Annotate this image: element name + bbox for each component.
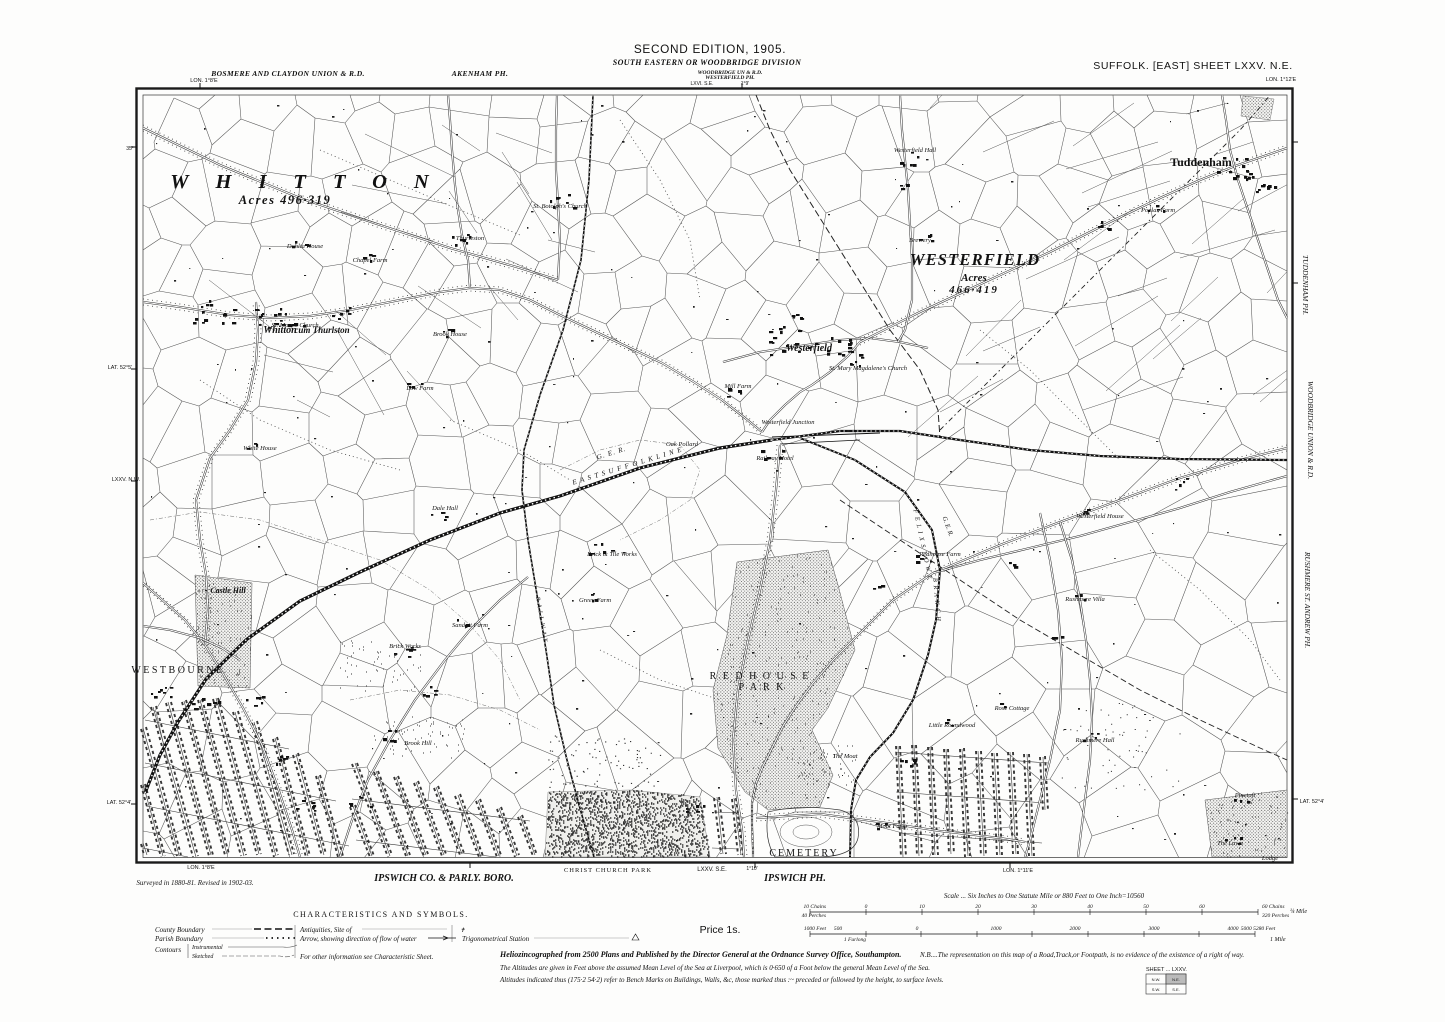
svg-text:500: 500 xyxy=(834,926,843,932)
svg-text:LON. 1°11'E: LON. 1°11'E xyxy=(1003,868,1033,874)
svg-text:RUSHMERE ST. ANDREW PH.: RUSHMERE ST. ANDREW PH. xyxy=(1303,551,1312,648)
svg-text:White House: White House xyxy=(243,445,277,452)
svg-text:1 Furlong: 1 Furlong xyxy=(844,937,866,943)
svg-text:For other information see Char: For other information see Characteristic… xyxy=(299,953,434,961)
svg-text:Redhouse Farm: Redhouse Farm xyxy=(918,551,961,558)
svg-text:Rose Cottage: Rose Cottage xyxy=(994,705,1030,712)
svg-text:30: 30 xyxy=(1030,904,1037,910)
svg-text:WESTBOURNE: WESTBOURNE xyxy=(131,665,224,676)
svg-text:S.W.: S.W. xyxy=(1152,987,1160,992)
svg-text:466·419: 466·419 xyxy=(948,284,999,296)
svg-text:St. Mary Magdalene's Church: St. Mary Magdalene's Church xyxy=(829,365,907,372)
svg-text:CHARACTERISTICS AND SYMBOLS.: CHARACTERISTICS AND SYMBOLS. xyxy=(293,910,469,919)
svg-text:N.W.: N.W. xyxy=(1152,977,1161,982)
svg-text:CEMETERY: CEMETERY xyxy=(769,848,838,859)
svg-text:The Moat: The Moat xyxy=(832,753,857,760)
svg-text:The Altitudes are given in Fee: The Altitudes are given in Feet above th… xyxy=(500,964,930,972)
svg-text:Sandpit Farm: Sandpit Farm xyxy=(452,622,488,629)
svg-text:Low Farm: Low Farm xyxy=(405,385,434,392)
svg-text:40: 40 xyxy=(1087,903,1093,910)
svg-text:LAT. 52°4': LAT. 52°4' xyxy=(1300,799,1325,805)
svg-text:BOSMERE AND CLAYDON UNION & R.: BOSMERE AND CLAYDON UNION & R.D. xyxy=(210,69,365,78)
svg-text:0: 0 xyxy=(916,926,919,932)
svg-text:IPSWICH PH.: IPSWICH PH. xyxy=(763,873,826,884)
svg-text:Parish Boundary: Parish Boundary xyxy=(154,935,204,943)
svg-text:SHEET ... LXXV.: SHEET ... LXXV. xyxy=(1146,967,1187,973)
svg-text:WHITTON: WHITTON xyxy=(170,171,455,193)
svg-text:Green Farm: Green Farm xyxy=(579,597,611,604)
svg-text:0: 0 xyxy=(865,904,868,910)
svg-text:Lodge: Lodge xyxy=(1261,855,1278,862)
svg-text:St. Mary's Church: St. Mary's Church xyxy=(271,322,318,329)
svg-text:1000: 1000 xyxy=(991,926,1002,932)
svg-text:Brook Hill: Brook Hill xyxy=(404,740,432,747)
svg-text:Westerfield House: Westerfield House xyxy=(1076,513,1123,520)
svg-text:3000: 3000 xyxy=(1148,926,1160,932)
svg-text:Heliozincographed from 2500 Pl: Heliozincographed from 2500 Plans and Pu… xyxy=(499,950,901,959)
svg-text:Moat Farm: Moat Farm xyxy=(876,823,907,830)
svg-text:1000 Feet: 1000 Feet xyxy=(804,926,827,932)
svg-text:Westerfield Hall: Westerfield Hall xyxy=(894,147,936,154)
svg-text:Poplar Farm: Poplar Farm xyxy=(1140,207,1175,214)
svg-text:Oak Pollard: Oak Pollard xyxy=(666,441,699,448)
svg-text:Dale Hall: Dale Hall xyxy=(431,505,458,512)
svg-text:SECOND EDITION, 1905.: SECOND EDITION, 1905. xyxy=(634,42,786,56)
svg-text:20: 20 xyxy=(975,904,981,910)
svg-text:10 Chains: 10 Chains xyxy=(804,904,826,910)
svg-text:AKENHAM PH.: AKENHAM PH. xyxy=(451,69,509,78)
svg-text:LXVI. S.E.: LXVI. S.E. xyxy=(690,81,713,87)
svg-text:Little Roundwood: Little Roundwood xyxy=(928,722,976,729)
svg-text:N.B....The representation on t: N.B....The representation on this map of… xyxy=(919,951,1244,959)
svg-text:Scale ... Six Inches to One St: Scale ... Six Inches to One Statute Mile… xyxy=(944,892,1145,900)
svg-text:Mill Farm: Mill Farm xyxy=(724,383,752,390)
svg-text:✝: ✝ xyxy=(460,927,465,934)
svg-text:LON. 1°8'E: LON. 1°8'E xyxy=(190,78,218,84)
svg-text:Thurleston: Thurleston xyxy=(456,235,484,242)
svg-text:Sketched: Sketched xyxy=(192,954,214,960)
svg-text:35°: 35° xyxy=(126,146,134,152)
svg-text:Surveyed in 1880-81. Revised: Surveyed in 1880-81. Revised in 1902-03. xyxy=(136,879,253,887)
svg-text:1 Mile: 1 Mile xyxy=(1270,937,1286,943)
svg-text:LON. 1°8'E: LON. 1°8'E xyxy=(187,865,215,871)
svg-text:Brewery: Brewery xyxy=(909,237,931,244)
svg-text:N.E.: N.E. xyxy=(1172,977,1180,982)
svg-text:5000 5280 Feet: 5000 5280 Feet xyxy=(1241,926,1276,932)
svg-text:Brook House: Brook House xyxy=(433,331,467,338)
svg-text:St. Botolph's Church: St. Botolph's Church xyxy=(533,203,587,210)
svg-text:LXXV. S.E.: LXXV. S.E. xyxy=(697,867,727,873)
svg-text:S.E.: S.E. xyxy=(1172,987,1180,992)
svg-text:1°9': 1°9' xyxy=(741,81,750,87)
svg-text:Railway Hotel: Railway Hotel xyxy=(755,455,794,462)
svg-text:2000: 2000 xyxy=(1070,926,1081,932)
svg-text:10: 10 xyxy=(919,904,925,910)
svg-text:Pinetoft: Pinetoft xyxy=(1234,792,1256,799)
svg-text:WESTERFIELD: WESTERFIELD xyxy=(910,250,1041,269)
svg-text:The Lawn: The Lawn xyxy=(1217,840,1243,847)
svg-text:Tuddenham: Tuddenham xyxy=(1170,155,1232,169)
svg-text:60 Chains: 60 Chains xyxy=(1262,904,1284,910)
svg-text:4000: 4000 xyxy=(1228,925,1239,932)
svg-text:Rushmere Hall: Rushmere Hall xyxy=(1075,737,1115,744)
svg-text:SOUTH EASTERN OR WOODBRIDGE DI: SOUTH EASTERN OR WOODBRIDGE DIVISION xyxy=(613,58,802,67)
svg-text:LON. 1°12'E: LON. 1°12'E xyxy=(1266,77,1297,83)
svg-text:CHRIST CHURCH PARK: CHRIST CHURCH PARK xyxy=(564,867,652,874)
svg-text:Brick & Tile Works: Brick & Tile Works xyxy=(587,551,637,558)
svg-text:Dahlia House: Dahlia House xyxy=(286,243,323,250)
svg-text:Acres 496·319: Acres 496·319 xyxy=(238,193,331,207)
svg-text:Rushmere Villa: Rushmere Villa xyxy=(1064,596,1105,603)
svg-text:Altitudes indicated thus (175·: Altitudes indicated thus (175·2 54·2) re… xyxy=(499,976,944,984)
svg-text:¼ Mile: ¼ Mile xyxy=(1290,909,1307,915)
svg-text:Instrumental: Instrumental xyxy=(191,945,223,951)
svg-text:320 Perches: 320 Perches xyxy=(1261,913,1289,919)
svg-text:Price 1s.: Price 1s. xyxy=(700,924,741,936)
svg-text:County Boundary: County Boundary xyxy=(155,926,205,934)
svg-text:Arrow, showing direction of fl: Arrow, showing direction of flow of wate… xyxy=(299,935,417,943)
svg-text:Contours: Contours xyxy=(155,946,181,954)
svg-text:R E D H O U S E: R E D H O U S E xyxy=(710,671,811,682)
svg-text:1°10': 1°10' xyxy=(746,866,757,872)
svg-text:Trigonometrical Station: Trigonometrical Station xyxy=(462,935,530,943)
svg-text:TUDDENHAM PH.: TUDDENHAM PH. xyxy=(1301,255,1310,315)
svg-text:WOODBRIDGE UNION & R.D.: WOODBRIDGE UNION & R.D. xyxy=(1306,381,1315,479)
svg-text:Westerfield Junction: Westerfield Junction xyxy=(761,419,814,426)
svg-text:Westerfield: Westerfield xyxy=(786,343,833,354)
svg-text:LAT. 52°4': LAT. 52°4' xyxy=(107,800,132,806)
svg-text:SUFFOLK. [EAST] SHEET LXXV. N.: SUFFOLK. [EAST] SHEET LXXV. N.E. xyxy=(1093,60,1293,72)
svg-text:50: 50 xyxy=(1143,904,1149,910)
svg-text:Chapel Farm: Chapel Farm xyxy=(353,257,388,264)
svg-text:Brick Works: Brick Works xyxy=(389,643,421,650)
svg-text:Antiquities, Site of: Antiquities, Site of xyxy=(299,926,353,934)
svg-text:40 Perches: 40 Perches xyxy=(802,912,826,919)
svg-text:LAT. 52°5': LAT. 52°5' xyxy=(108,365,133,371)
svg-text:Castle Hill: Castle Hill xyxy=(210,586,246,595)
svg-text:60: 60 xyxy=(1199,904,1205,910)
svg-text:Acres: Acres xyxy=(960,272,987,284)
svg-text:LXXV. N.W.: LXXV. N.W. xyxy=(112,477,141,483)
svg-text:P A R K: P A R K xyxy=(739,682,786,693)
svg-text:IPSWICH CO. & PARLY. BORO.: IPSWICH CO. & PARLY. BORO. xyxy=(373,873,514,884)
